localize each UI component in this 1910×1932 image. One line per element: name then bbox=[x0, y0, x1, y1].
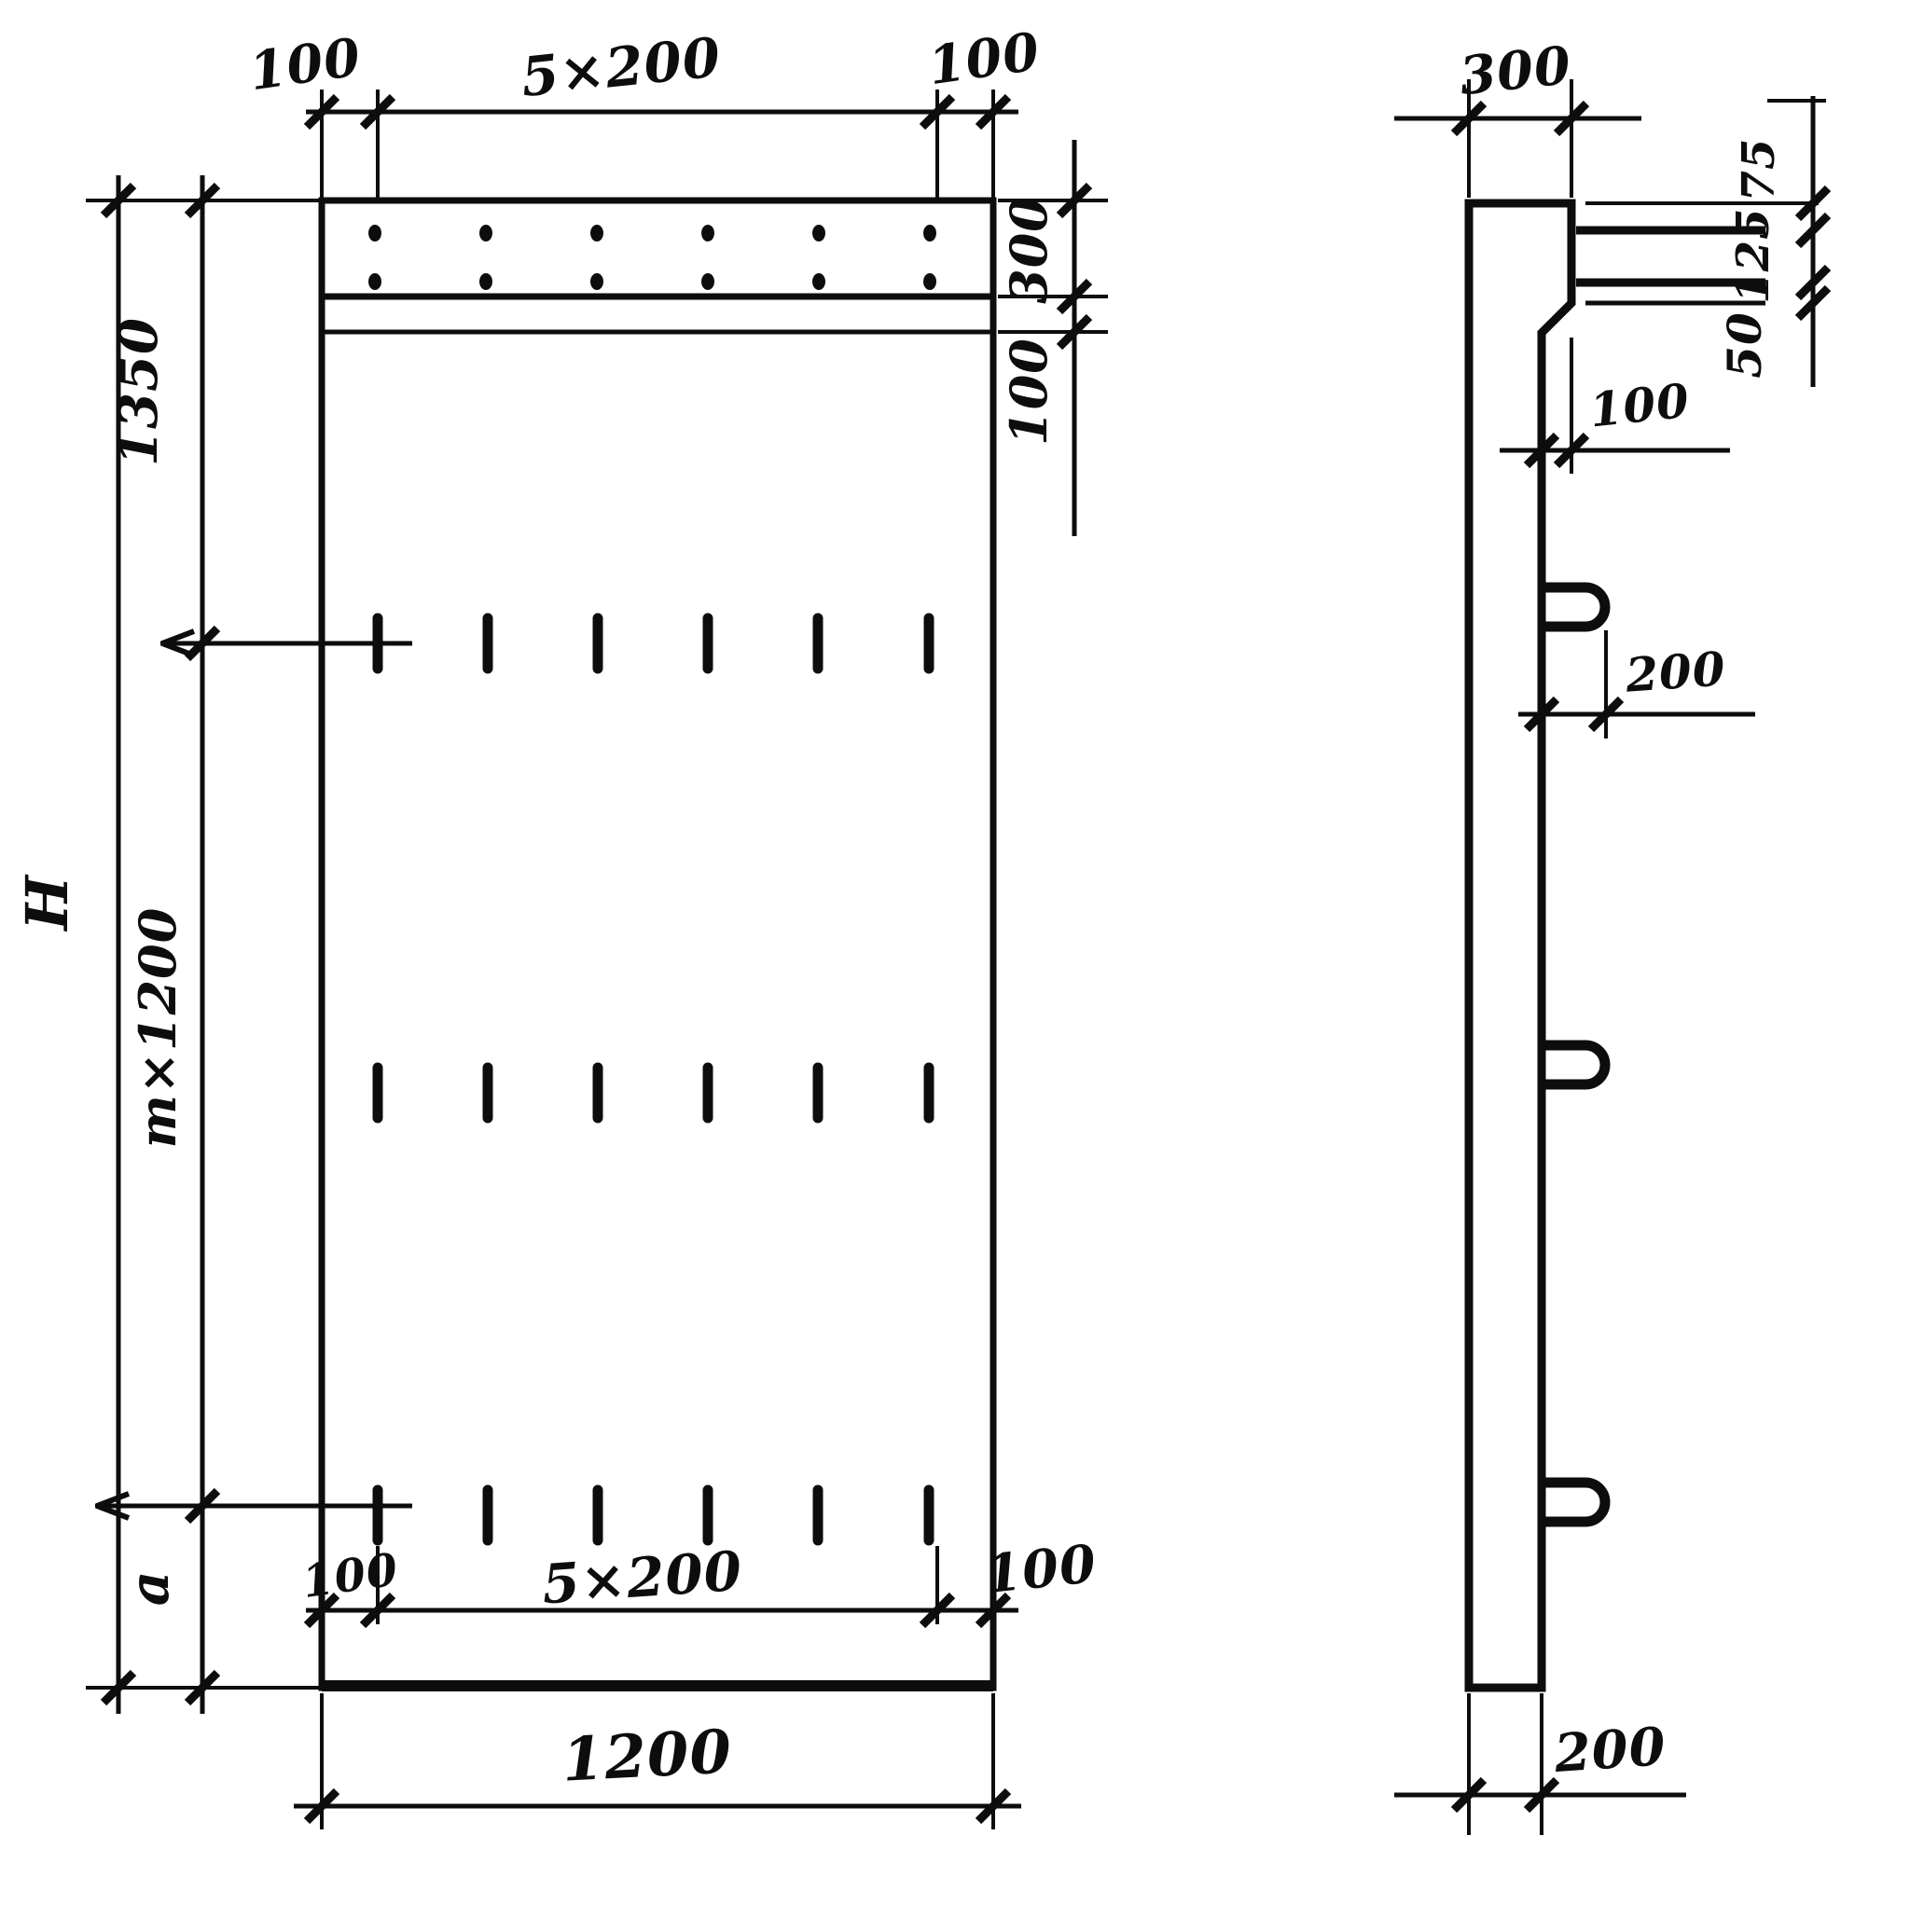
rail-lines bbox=[1576, 203, 1819, 303]
side-loop-dimension: 200 bbox=[1518, 630, 1755, 738]
dim-label-top-right: 100 bbox=[924, 21, 1044, 97]
dim-label-strip-100: 100 bbox=[999, 338, 1059, 446]
dim-label-1200: 1200 bbox=[561, 1717, 734, 1795]
dim-label-top-spacing: 5×200 bbox=[518, 25, 724, 109]
dim-label-50: 50 bbox=[1717, 311, 1772, 379]
dim-label-m1200: m×1200 bbox=[128, 907, 187, 1149]
panel-drawing: 100 5×200 100 300 100 bbox=[0, 0, 1910, 1932]
dim-label-125: 125 bbox=[1727, 207, 1779, 303]
dim-label-step-100: 100 bbox=[1587, 373, 1693, 438]
dim-label-loop-200: 200 bbox=[1623, 641, 1727, 702]
dim-label-band-300: 300 bbox=[999, 196, 1059, 304]
panel-outline bbox=[322, 200, 993, 1688]
front-top-dimension: 100 5×200 100 bbox=[245, 21, 1044, 198]
dim-label-H: H bbox=[13, 874, 81, 932]
dim-label-side-300: 300 bbox=[1457, 34, 1574, 107]
front-right-dimension: 300 100 bbox=[998, 140, 1108, 536]
dim-label-bottom-right: 100 bbox=[982, 1533, 1100, 1606]
dim-label-a: a bbox=[118, 1570, 181, 1607]
front-view: 100 5×200 100 300 100 bbox=[13, 21, 1108, 1829]
side-top-dimension: 300 bbox=[1394, 34, 1641, 198]
drawing-sheet: 100 5×200 100 300 100 bbox=[0, 0, 1910, 1932]
side-view: 300 75 125 50 100 200 bbox=[1394, 34, 1828, 1835]
dim-label-1350: 1350 bbox=[108, 317, 170, 466]
dim-label-bottom-200: 200 bbox=[1552, 1716, 1668, 1785]
dim-label-top-left: 100 bbox=[245, 26, 365, 103]
dim-label-75: 75 bbox=[1733, 138, 1785, 202]
side-profile-outline bbox=[1469, 203, 1571, 1688]
side-right-dimension: 75 125 50 bbox=[1717, 96, 1828, 387]
side-bottom-dimension: 200 bbox=[1394, 1693, 1686, 1835]
